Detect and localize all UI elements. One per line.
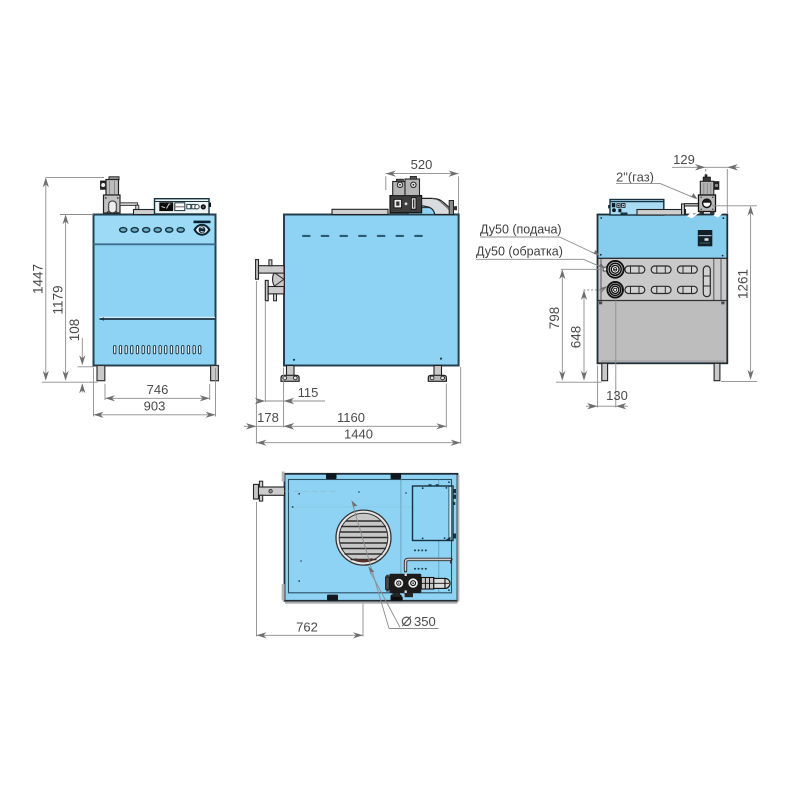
svg-text:1261: 1261 — [735, 269, 750, 299]
svg-text:178: 178 — [257, 410, 279, 425]
svg-text:1440: 1440 — [344, 426, 373, 441]
svg-text:520: 520 — [411, 157, 433, 172]
svg-text:130: 130 — [606, 388, 628, 403]
svg-text:350: 350 — [414, 614, 436, 629]
svg-text:1179: 1179 — [50, 285, 65, 314]
svg-text:746: 746 — [147, 382, 169, 397]
svg-text:762: 762 — [296, 619, 318, 634]
svg-text:Ду50 (подача): Ду50 (подача) — [480, 223, 562, 237]
svg-text:648: 648 — [569, 326, 584, 349]
svg-text:1160: 1160 — [337, 410, 365, 425]
svg-text:903: 903 — [144, 398, 166, 413]
svg-text:798: 798 — [547, 307, 562, 330]
svg-text:108: 108 — [67, 319, 82, 342]
svg-text:115: 115 — [298, 385, 319, 400]
svg-text:Ду50 (обратка): Ду50 (обратка) — [476, 244, 563, 258]
svg-text:129: 129 — [673, 152, 695, 167]
svg-text:2"(газ): 2"(газ) — [616, 170, 654, 185]
svg-text:1447: 1447 — [31, 264, 46, 294]
